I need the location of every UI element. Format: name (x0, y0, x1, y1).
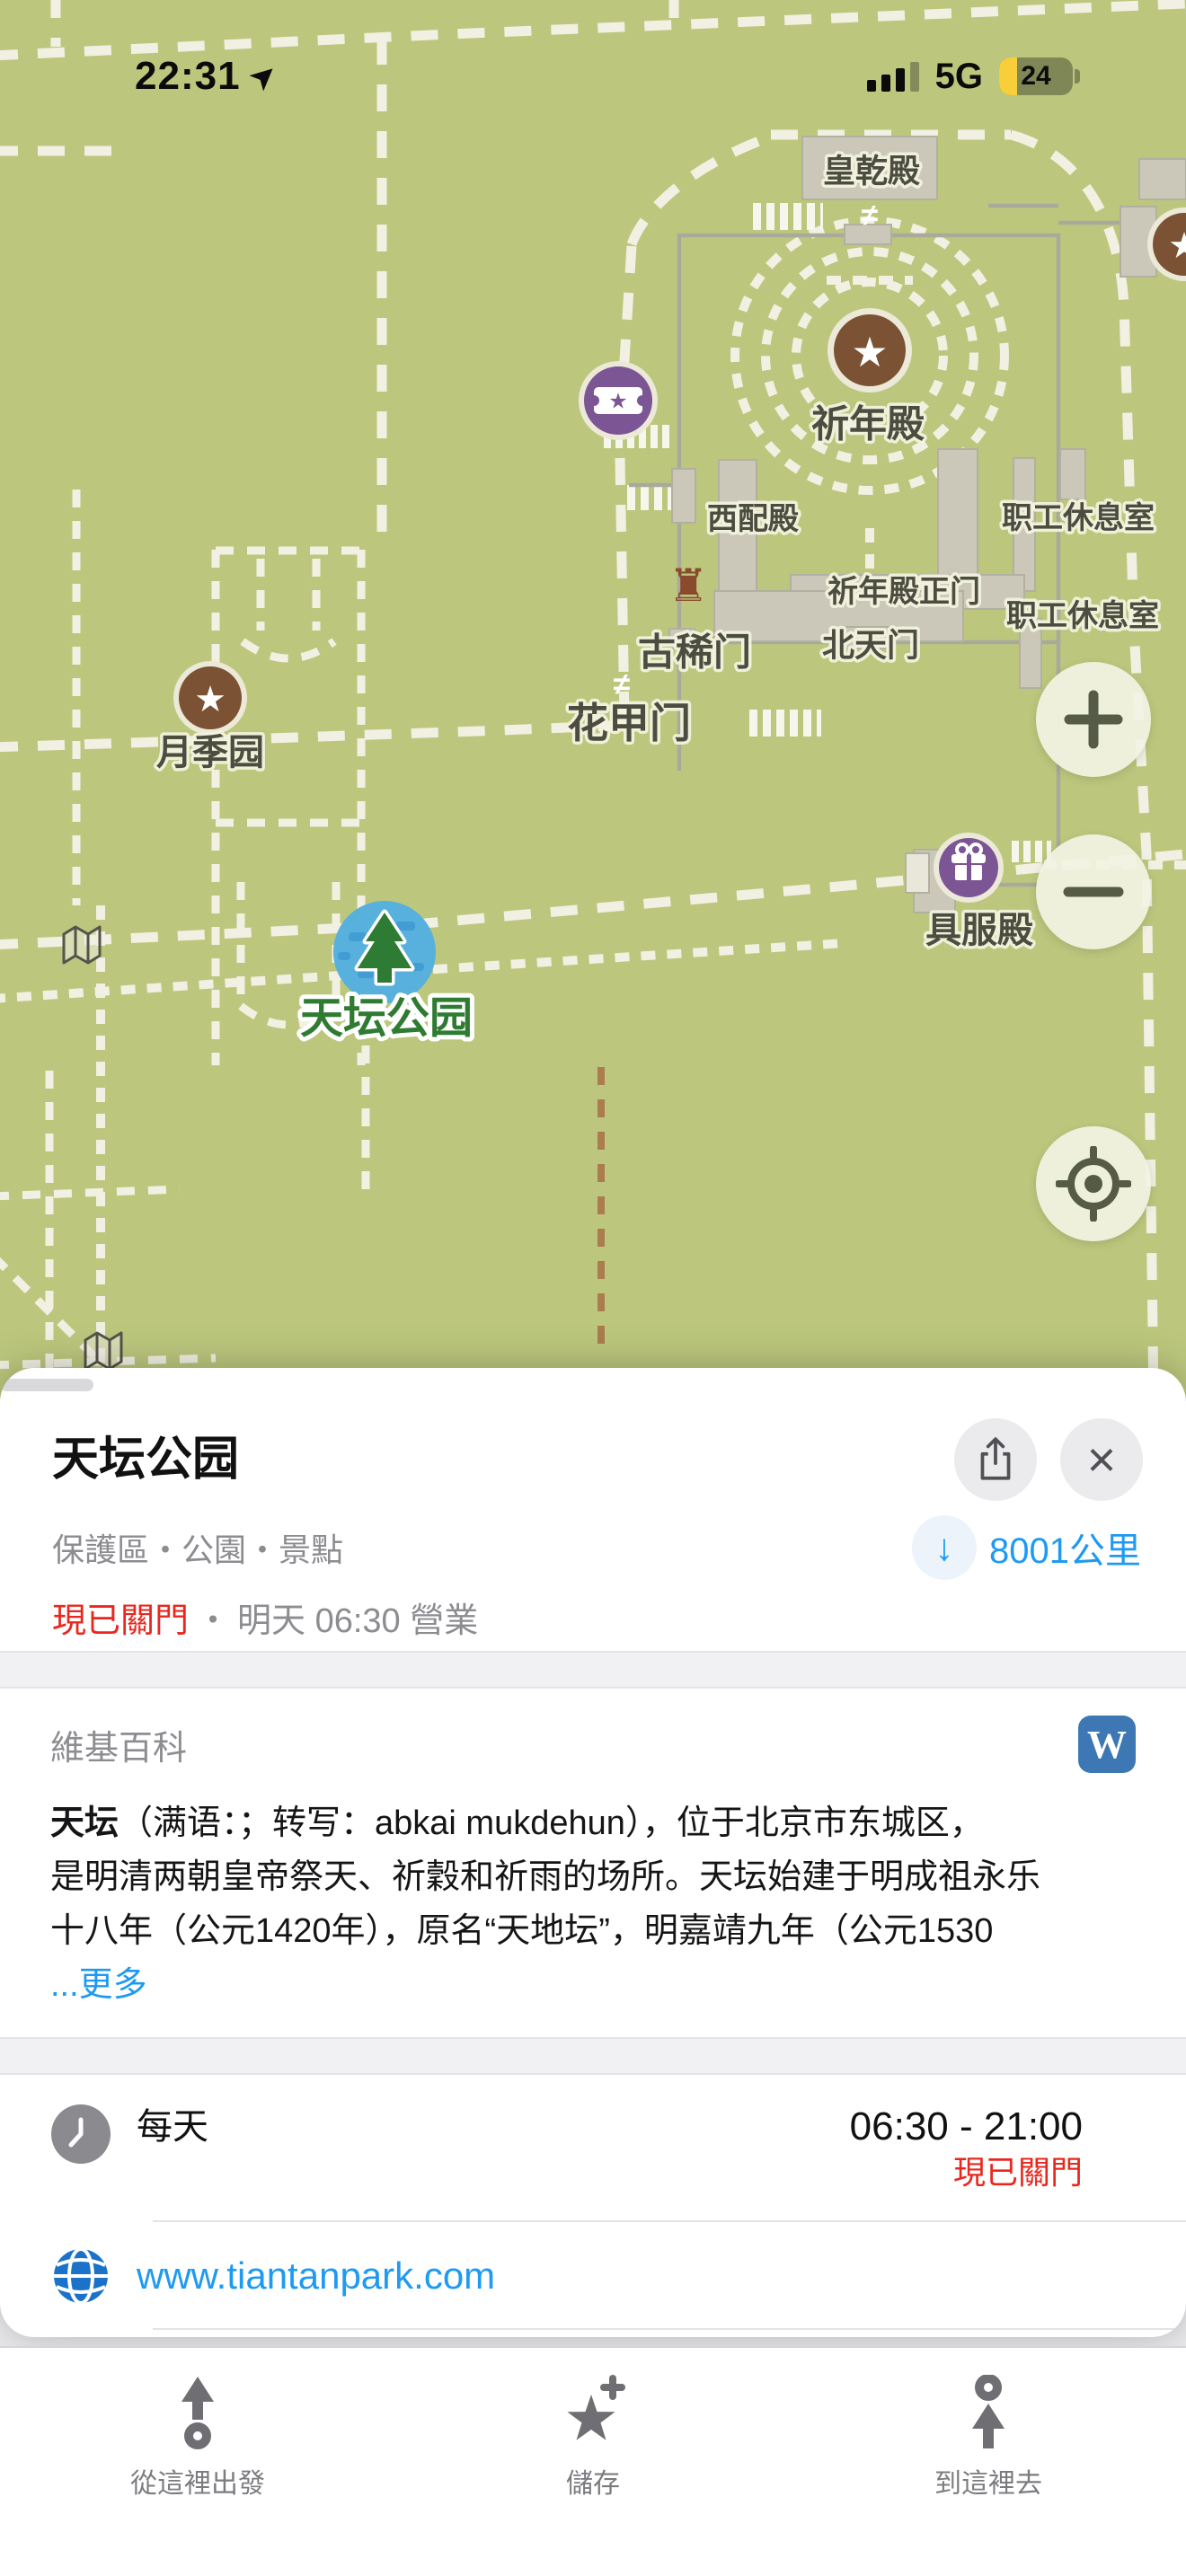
svg-text:★: ★ (194, 680, 226, 719)
hours-row[interactable]: 每天 06:30 - 21:00 現已關門 (0, 2075, 1186, 2220)
map-label[interactable]: 具服殿 (925, 911, 1033, 950)
battery-icon: 24 (999, 57, 1073, 95)
share-icon (975, 1435, 1016, 1484)
poi-ticket-icon[interactable]: ★ (579, 361, 658, 440)
share-button[interactable] (954, 1418, 1037, 1501)
location-arrow-icon (250, 62, 279, 91)
iphone-screen: ★ ★ ★ ★ ♜ ≠ (0, 0, 1186, 2576)
sheet-drag-handle[interactable] (0, 1379, 93, 1391)
map-label[interactable]: 西配殿 (707, 502, 799, 536)
website-row[interactable]: www.tiantanpark.com (0, 2222, 1186, 2328)
distance-value: 8001公里 (989, 1522, 1141, 1574)
locate-me-button[interactable] (1036, 1126, 1151, 1241)
battery-percent: 24 (1021, 61, 1050, 92)
close-icon: × (1087, 1434, 1117, 1485)
hours-closed-status: 現已關門 (850, 2152, 1083, 2193)
network-type: 5G (935, 57, 983, 97)
map-label[interactable]: 皇乾殿 (823, 153, 920, 190)
locate-icon (1056, 1146, 1131, 1222)
globe-icon (50, 2245, 111, 2307)
star-plus-icon (561, 2375, 625, 2450)
wiki-lead: 天坛 (50, 1804, 119, 1842)
directions-to-here-button[interactable]: 到這裡去 (791, 2348, 1186, 2576)
map-fold-icon (85, 1333, 121, 1369)
more-link[interactable]: ...更多 (50, 1958, 1136, 2012)
map-label-park[interactable]: 天坛公园 (300, 995, 473, 1043)
distance-indicator: ↓ 8001公里 (912, 1515, 1141, 1580)
hours-time: 06:30 - 21:00 (850, 2104, 1083, 2150)
map-label[interactable]: 祈年殿正门 (828, 575, 980, 609)
battery-cap (1075, 69, 1080, 84)
svg-text:★: ★ (1168, 226, 1186, 266)
plus-icon (1059, 685, 1128, 754)
signal-bars-icon (867, 60, 921, 93)
route-to-icon (960, 2375, 1017, 2450)
clock-icon (50, 2104, 111, 2165)
wikipedia-section: 維基百科 W 天坛（满语：；转写：abkai mukdehun），位于北京市东城… (0, 1689, 1186, 2037)
close-button[interactable]: × (1060, 1418, 1143, 1501)
map-canvas[interactable]: ★ ★ ★ ★ ♜ ≠ (0, 0, 1186, 1401)
row-divider (153, 2328, 1186, 2330)
gate-symbol: ≠ (862, 198, 879, 233)
open-status-row: 現已關門・明天 06:30 營業 (0, 1592, 1186, 1651)
map-label[interactable]: 职工休息室 (1006, 598, 1159, 633)
gate-symbol: ≠ (614, 667, 631, 701)
directions-from-here-button[interactable]: 從這裡出發 (0, 2348, 395, 2576)
park-tree-marker[interactable] (333, 901, 436, 1003)
place-title: 天坛公园 (52, 1418, 239, 1501)
place-categories: 保護區・公園・景點 (52, 1524, 343, 1571)
svg-text:★: ★ (608, 390, 628, 414)
map-label[interactable]: 花甲门 (567, 700, 691, 746)
website-link[interactable]: www.tiantanpark.com (137, 2254, 495, 2298)
route-from-icon (169, 2375, 226, 2450)
svg-text:★: ★ (851, 329, 888, 375)
map-label[interactable]: 北天门 (822, 627, 919, 664)
wikipedia-icon[interactable]: W (1078, 1716, 1136, 1773)
poi-gift-icon[interactable] (934, 833, 1004, 903)
poi-star-marker-qiniandian[interactable]: ★ (828, 308, 912, 393)
poi-star-marker-rose-garden[interactable]: ★ (173, 661, 247, 735)
status-bar: 22:31 5G 24 (0, 54, 1186, 99)
minus-icon (1059, 858, 1128, 926)
action-bar: 從這裡出發 儲存 到這裡去 (0, 2348, 1186, 2576)
zoom-out-button[interactable] (1036, 834, 1151, 949)
section-separator (0, 2037, 1186, 2075)
closed-status: 現已關門 (52, 1602, 189, 1640)
wikipedia-header: 維基百科 (50, 1720, 187, 1769)
opens-info: 明天 06:30 營業 (237, 1602, 478, 1640)
zoom-in-button[interactable] (1036, 662, 1151, 777)
section-separator (0, 1651, 1186, 1689)
castle-icon[interactable]: ♜ (668, 560, 709, 611)
wikipedia-summary: 天坛（满语：；转写：abkai mukdehun），位于北京市东城区， 是明清两… (50, 1796, 1136, 2012)
hours-days: 每天 (137, 2104, 850, 2150)
map-fold-icon (64, 927, 100, 963)
save-button[interactable]: 儲存 (395, 2348, 791, 2576)
direction-arrow-icon: ↓ (912, 1515, 977, 1580)
clock-time: 22:31 (135, 54, 241, 99)
map-label[interactable]: 古稀门 (638, 631, 751, 674)
map-label[interactable]: 月季园 (156, 733, 264, 772)
place-card: 天坛公园 × 保護區・公園・景點 ↓ 8001公里 現已 (0, 1368, 1186, 2337)
map-label[interactable]: 职工休息室 (1002, 500, 1155, 535)
map-label[interactable]: 祈年殿 (811, 403, 925, 446)
